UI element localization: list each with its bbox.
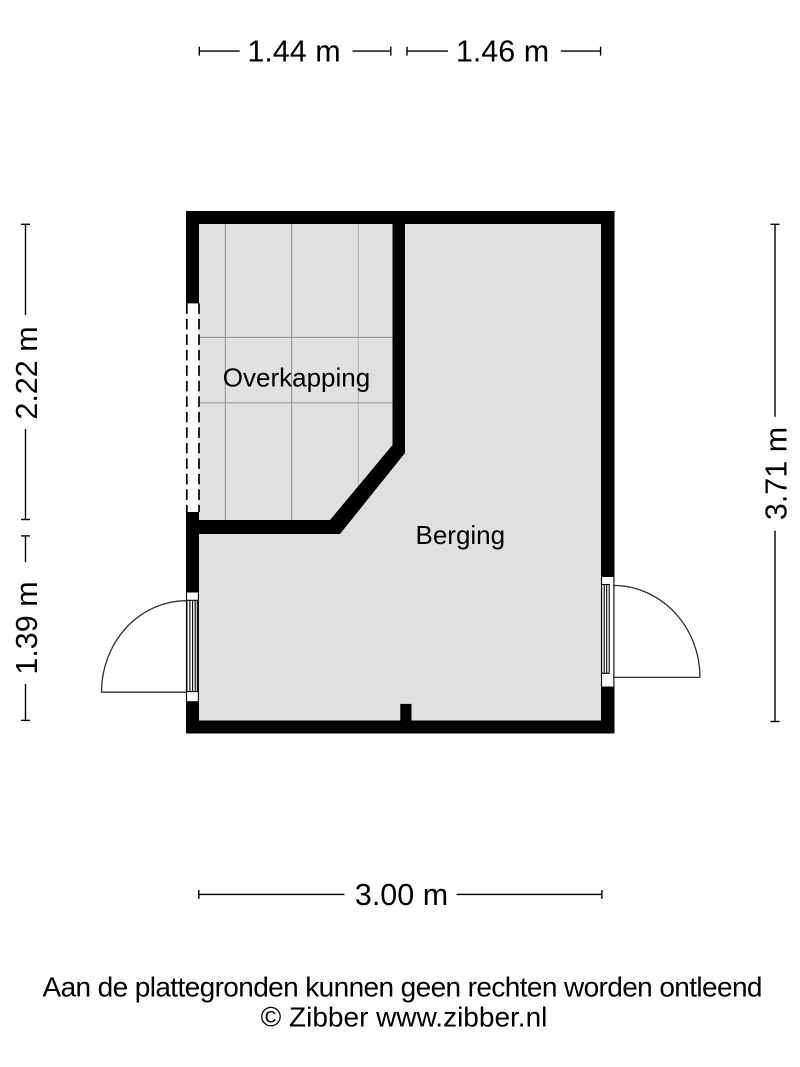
svg-text:© Zibber www.zibber.nl: © Zibber www.zibber.nl [261, 1002, 548, 1033]
svg-text:3.71 m: 3.71 m [760, 427, 794, 520]
svg-text:3.00 m: 3.00 m [355, 878, 448, 912]
svg-text:1.39 m: 1.39 m [10, 581, 44, 674]
svg-text:2.22 m: 2.22 m [10, 326, 44, 419]
svg-text:1.44 m: 1.44 m [247, 35, 340, 69]
svg-text:Overkapping: Overkapping [223, 363, 370, 393]
svg-text:1.46 m: 1.46 m [456, 35, 549, 69]
svg-text:Aan de plattegronden kunnen ge: Aan de plattegronden kunnen geen rechten… [43, 972, 763, 1003]
svg-text:Berging: Berging [415, 520, 505, 550]
